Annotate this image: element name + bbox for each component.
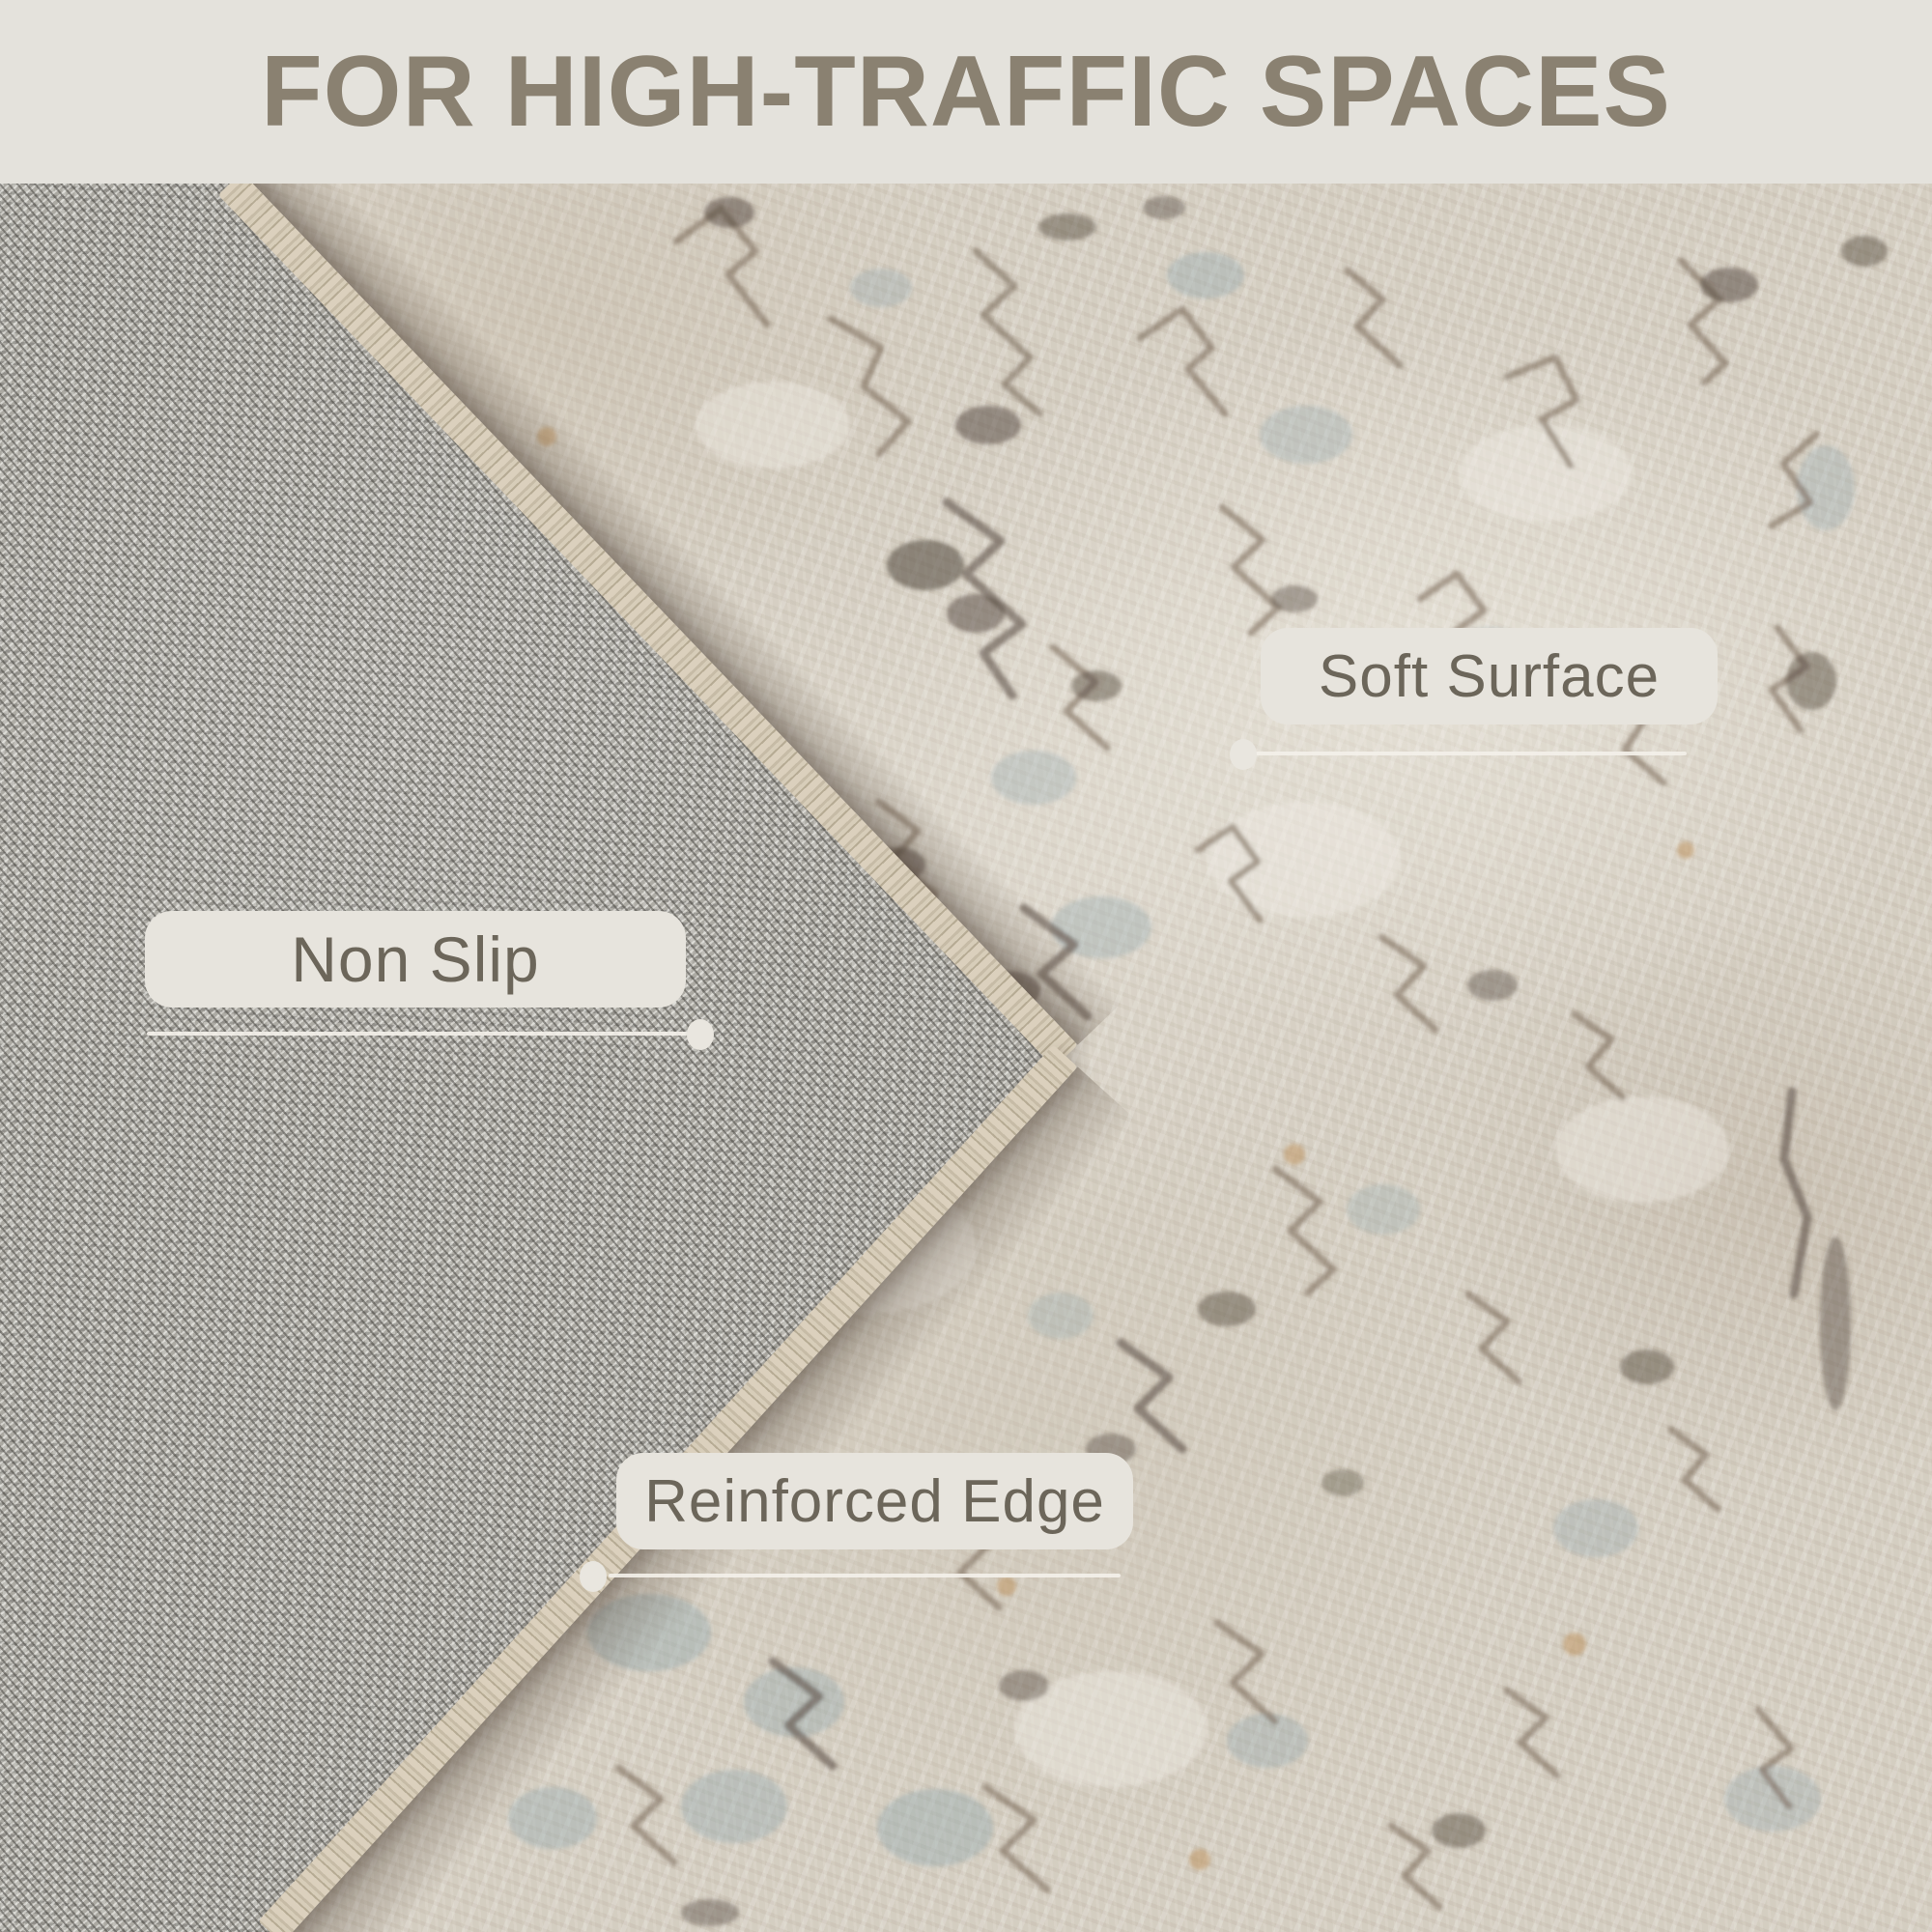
callout-reinforced-edge-line xyxy=(609,1574,1121,1577)
callout-soft-surface-label: Soft Surface xyxy=(1319,642,1660,711)
callout-soft-surface-dot xyxy=(1230,739,1257,770)
product-infographic: { "header": { "title": "FOR HIGH-TRAFFIC… xyxy=(0,0,1932,1932)
callout-soft-surface-line xyxy=(1256,752,1687,755)
page-title: FOR HIGH-TRAFFIC SPACES xyxy=(261,35,1671,150)
callout-non-slip-dot xyxy=(687,1019,714,1050)
rug-photo xyxy=(0,184,1932,1932)
callout-reinforced-edge: Reinforced Edge xyxy=(616,1453,1133,1549)
callout-non-slip: Non Slip xyxy=(145,911,686,1008)
callout-non-slip-line xyxy=(147,1032,688,1036)
callout-reinforced-edge-dot xyxy=(580,1561,607,1592)
callout-non-slip-label: Non Slip xyxy=(291,923,539,996)
callout-reinforced-edge-label: Reinforced Edge xyxy=(644,1467,1105,1536)
callout-soft-surface: Soft Surface xyxy=(1261,628,1718,724)
header-band: FOR HIGH-TRAFFIC SPACES xyxy=(0,0,1932,184)
